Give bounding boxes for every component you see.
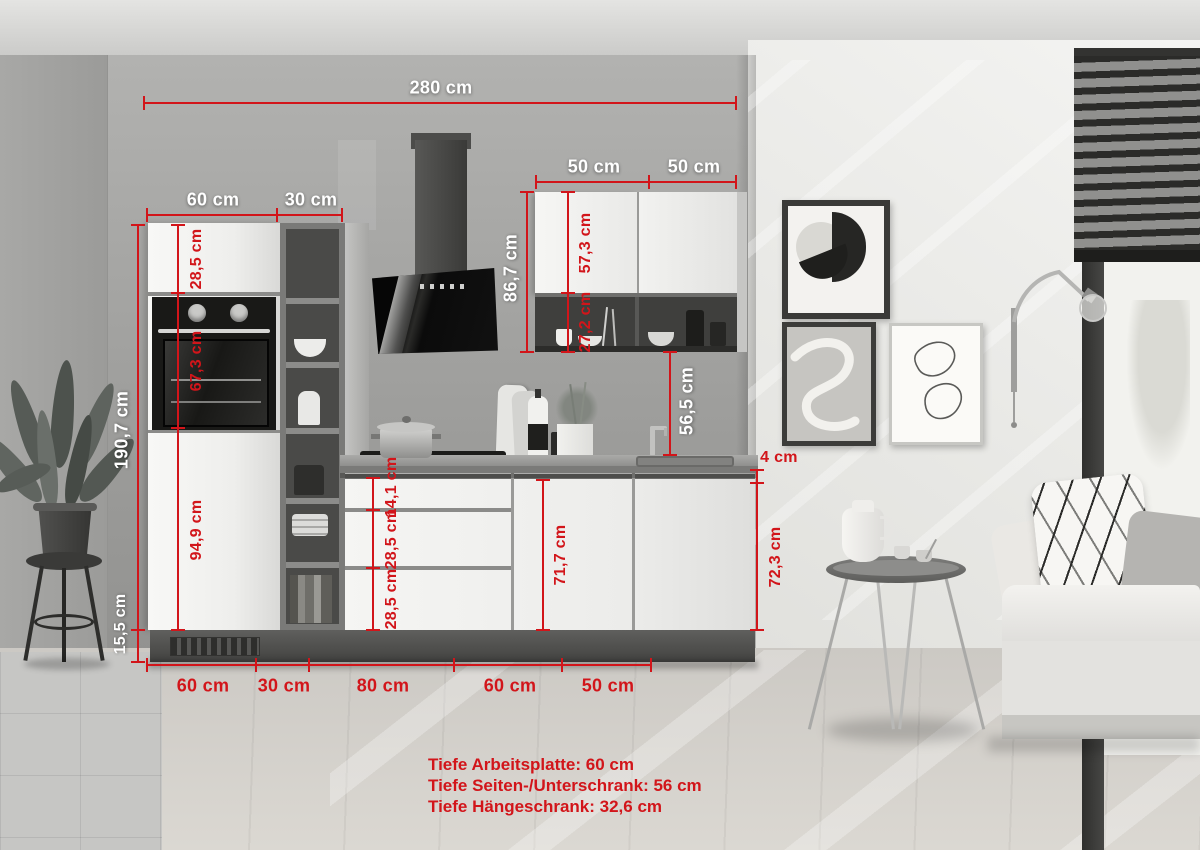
base-seam-2 bbox=[632, 472, 635, 630]
tall-cabinet-seam-bottom bbox=[148, 430, 280, 433]
dim-base-total: 72,3 cm bbox=[767, 527, 785, 588]
dim-oven: 67,3 cm bbox=[188, 331, 206, 392]
wall-left bbox=[0, 55, 108, 665]
oven bbox=[152, 297, 276, 430]
shelf-board-2 bbox=[286, 362, 339, 368]
shelf-board-4 bbox=[286, 498, 339, 504]
oven-handle bbox=[158, 329, 270, 333]
kitchen-dimension-diagram: 280 cm 50 cm 50 cm 60 cm 30 cm 190,7 cm … bbox=[0, 0, 1200, 850]
dim-worktop: 4 cm bbox=[760, 449, 798, 467]
bench-base bbox=[1002, 641, 1200, 717]
dim-tall-height: 190,7 cm bbox=[112, 391, 133, 469]
shelf-canister bbox=[686, 310, 704, 346]
base-cabinets bbox=[345, 472, 755, 630]
oil-bottle-cap bbox=[535, 389, 541, 398]
dim-floor-30: 30 cm bbox=[258, 676, 311, 697]
plinth-vent bbox=[170, 637, 260, 656]
upper-cabinet-right bbox=[639, 192, 737, 293]
dim-open-shelf: 27,2 cm bbox=[577, 292, 595, 353]
dim-hood-span: 86,7 cm bbox=[501, 234, 522, 302]
shelf-mortar bbox=[648, 332, 674, 346]
countertop-shadow bbox=[340, 473, 758, 478]
oil-bottle-label bbox=[528, 424, 548, 450]
upper-side-panel bbox=[737, 192, 747, 352]
shelf-knife-1 bbox=[602, 307, 608, 346]
pot-lid bbox=[377, 422, 435, 432]
upper-shelf-divider bbox=[635, 297, 639, 346]
dim-tall-top: 28,5 cm bbox=[188, 229, 206, 290]
shelf-jar bbox=[710, 322, 726, 346]
dim-drawer-bottom: 28,5 cm bbox=[383, 569, 401, 630]
cooking-pot bbox=[380, 428, 432, 458]
shelf-column bbox=[280, 223, 345, 630]
wall-light-patch bbox=[338, 140, 376, 230]
hood-buttons bbox=[420, 284, 464, 289]
table-shadow bbox=[826, 718, 978, 742]
shelf-board-3 bbox=[286, 428, 339, 434]
dim-line-base-total bbox=[756, 483, 758, 630]
pot-handle-right bbox=[432, 434, 441, 439]
upper-open-shelf bbox=[535, 293, 737, 352]
plant-pot bbox=[36, 506, 94, 554]
shelf-item-jug bbox=[298, 391, 320, 425]
dim-upper-right: 50 cm bbox=[668, 157, 721, 178]
dim-line-backsplash bbox=[669, 352, 671, 455]
pot-handle-left bbox=[371, 434, 380, 439]
dim-floor-60b: 60 cm bbox=[484, 676, 537, 697]
oven-rack-1 bbox=[171, 379, 261, 381]
note-wallcabinet-depth: Tiefe Hängeschrank: 32,6 cm bbox=[428, 796, 702, 817]
dim-line-tall-segments bbox=[177, 225, 179, 630]
herb-planter bbox=[557, 424, 593, 458]
dim-upper-left: 50 cm bbox=[568, 157, 621, 178]
dim-plinth: 15,5 cm bbox=[112, 594, 130, 655]
frame3-line-art bbox=[892, 326, 980, 442]
shelf-column-side-panel bbox=[345, 223, 369, 475]
upper-cabinet-seam bbox=[637, 192, 639, 293]
oven-knob-left bbox=[188, 304, 206, 322]
oven-rack-2 bbox=[171, 401, 261, 403]
dim-upper-door: 57,3 cm bbox=[577, 213, 595, 274]
shelf-cup bbox=[556, 329, 572, 346]
dim-tall-width: 60 cm bbox=[187, 190, 240, 211]
frame2-ribbon-art bbox=[787, 327, 871, 441]
plant-pot-rim bbox=[33, 503, 97, 511]
dim-base-door: 71,7 cm bbox=[552, 525, 570, 586]
oven-knob-right bbox=[230, 304, 248, 322]
faucet bbox=[650, 426, 655, 456]
dim-line-floor-widths bbox=[148, 664, 652, 666]
faucet-drop bbox=[664, 428, 667, 436]
dim-line-drawers bbox=[372, 478, 374, 630]
dim-line-upper-cabinets bbox=[537, 181, 737, 183]
tall-cabinet-seam-top bbox=[148, 292, 280, 296]
dim-floor-60a: 60 cm bbox=[177, 676, 230, 697]
dim-drawer-mid: 28,5 cm bbox=[383, 509, 401, 570]
oil-bottle bbox=[528, 396, 548, 458]
countertop-edge bbox=[340, 466, 758, 473]
jug bbox=[842, 508, 884, 562]
dim-line-hood-span bbox=[526, 192, 528, 352]
window-blinds bbox=[1074, 56, 1200, 254]
dim-line-total-width bbox=[145, 102, 737, 104]
wall-lamp bbox=[985, 250, 1115, 435]
pot-knob bbox=[402, 416, 411, 423]
dim-floor-50: 50 cm bbox=[582, 676, 635, 697]
stool-shadow bbox=[24, 658, 110, 670]
dim-line-tall-height bbox=[137, 225, 139, 662]
depth-notes: Tiefe Arbeitsplatte: 60 cm Tiefe Seiten-… bbox=[428, 754, 702, 817]
note-cabinet-depth: Tiefe Seiten-/Unterschrank: 56 cm bbox=[428, 775, 702, 796]
shelf-item-stack bbox=[292, 514, 328, 536]
bench-cushion bbox=[1002, 585, 1200, 643]
stool-ring bbox=[34, 614, 94, 630]
window-view-tree bbox=[1120, 300, 1190, 490]
picture-frame-2 bbox=[782, 322, 876, 446]
shelf-board-5 bbox=[286, 562, 339, 568]
cup-1 bbox=[894, 546, 910, 559]
shelf-knife-2 bbox=[612, 309, 617, 346]
shelf-item-kettle bbox=[294, 465, 324, 495]
shelf-board-1 bbox=[286, 298, 339, 304]
table-top-inner bbox=[833, 560, 959, 576]
dim-floor-80: 80 cm bbox=[357, 676, 410, 697]
dim-total-width: 280 cm bbox=[410, 78, 473, 99]
base-seam-1 bbox=[511, 472, 514, 630]
dim-line-worktop bbox=[756, 470, 758, 483]
dim-shelf-width: 30 cm bbox=[285, 190, 338, 211]
bench-shadow bbox=[988, 736, 1200, 752]
floor-tiles bbox=[0, 652, 162, 850]
hood-body bbox=[372, 268, 498, 354]
hood-chimney bbox=[415, 140, 467, 290]
herbs bbox=[556, 386, 598, 426]
dim-backsplash: 56,5 cm bbox=[677, 367, 698, 435]
jug-neck bbox=[852, 500, 874, 512]
picture-frame-3 bbox=[889, 323, 983, 445]
dim-line-upper-segments bbox=[567, 192, 569, 352]
dim-tall-bottom: 94,9 cm bbox=[188, 500, 206, 561]
picture-frame-1 bbox=[782, 200, 890, 319]
dim-line-base-door bbox=[542, 480, 544, 630]
note-worktop-depth: Tiefe Arbeitsplatte: 60 cm bbox=[428, 754, 702, 775]
dim-line-tall-shelf-width bbox=[148, 214, 343, 216]
shelf-item-books bbox=[290, 575, 332, 623]
sink bbox=[636, 456, 734, 467]
